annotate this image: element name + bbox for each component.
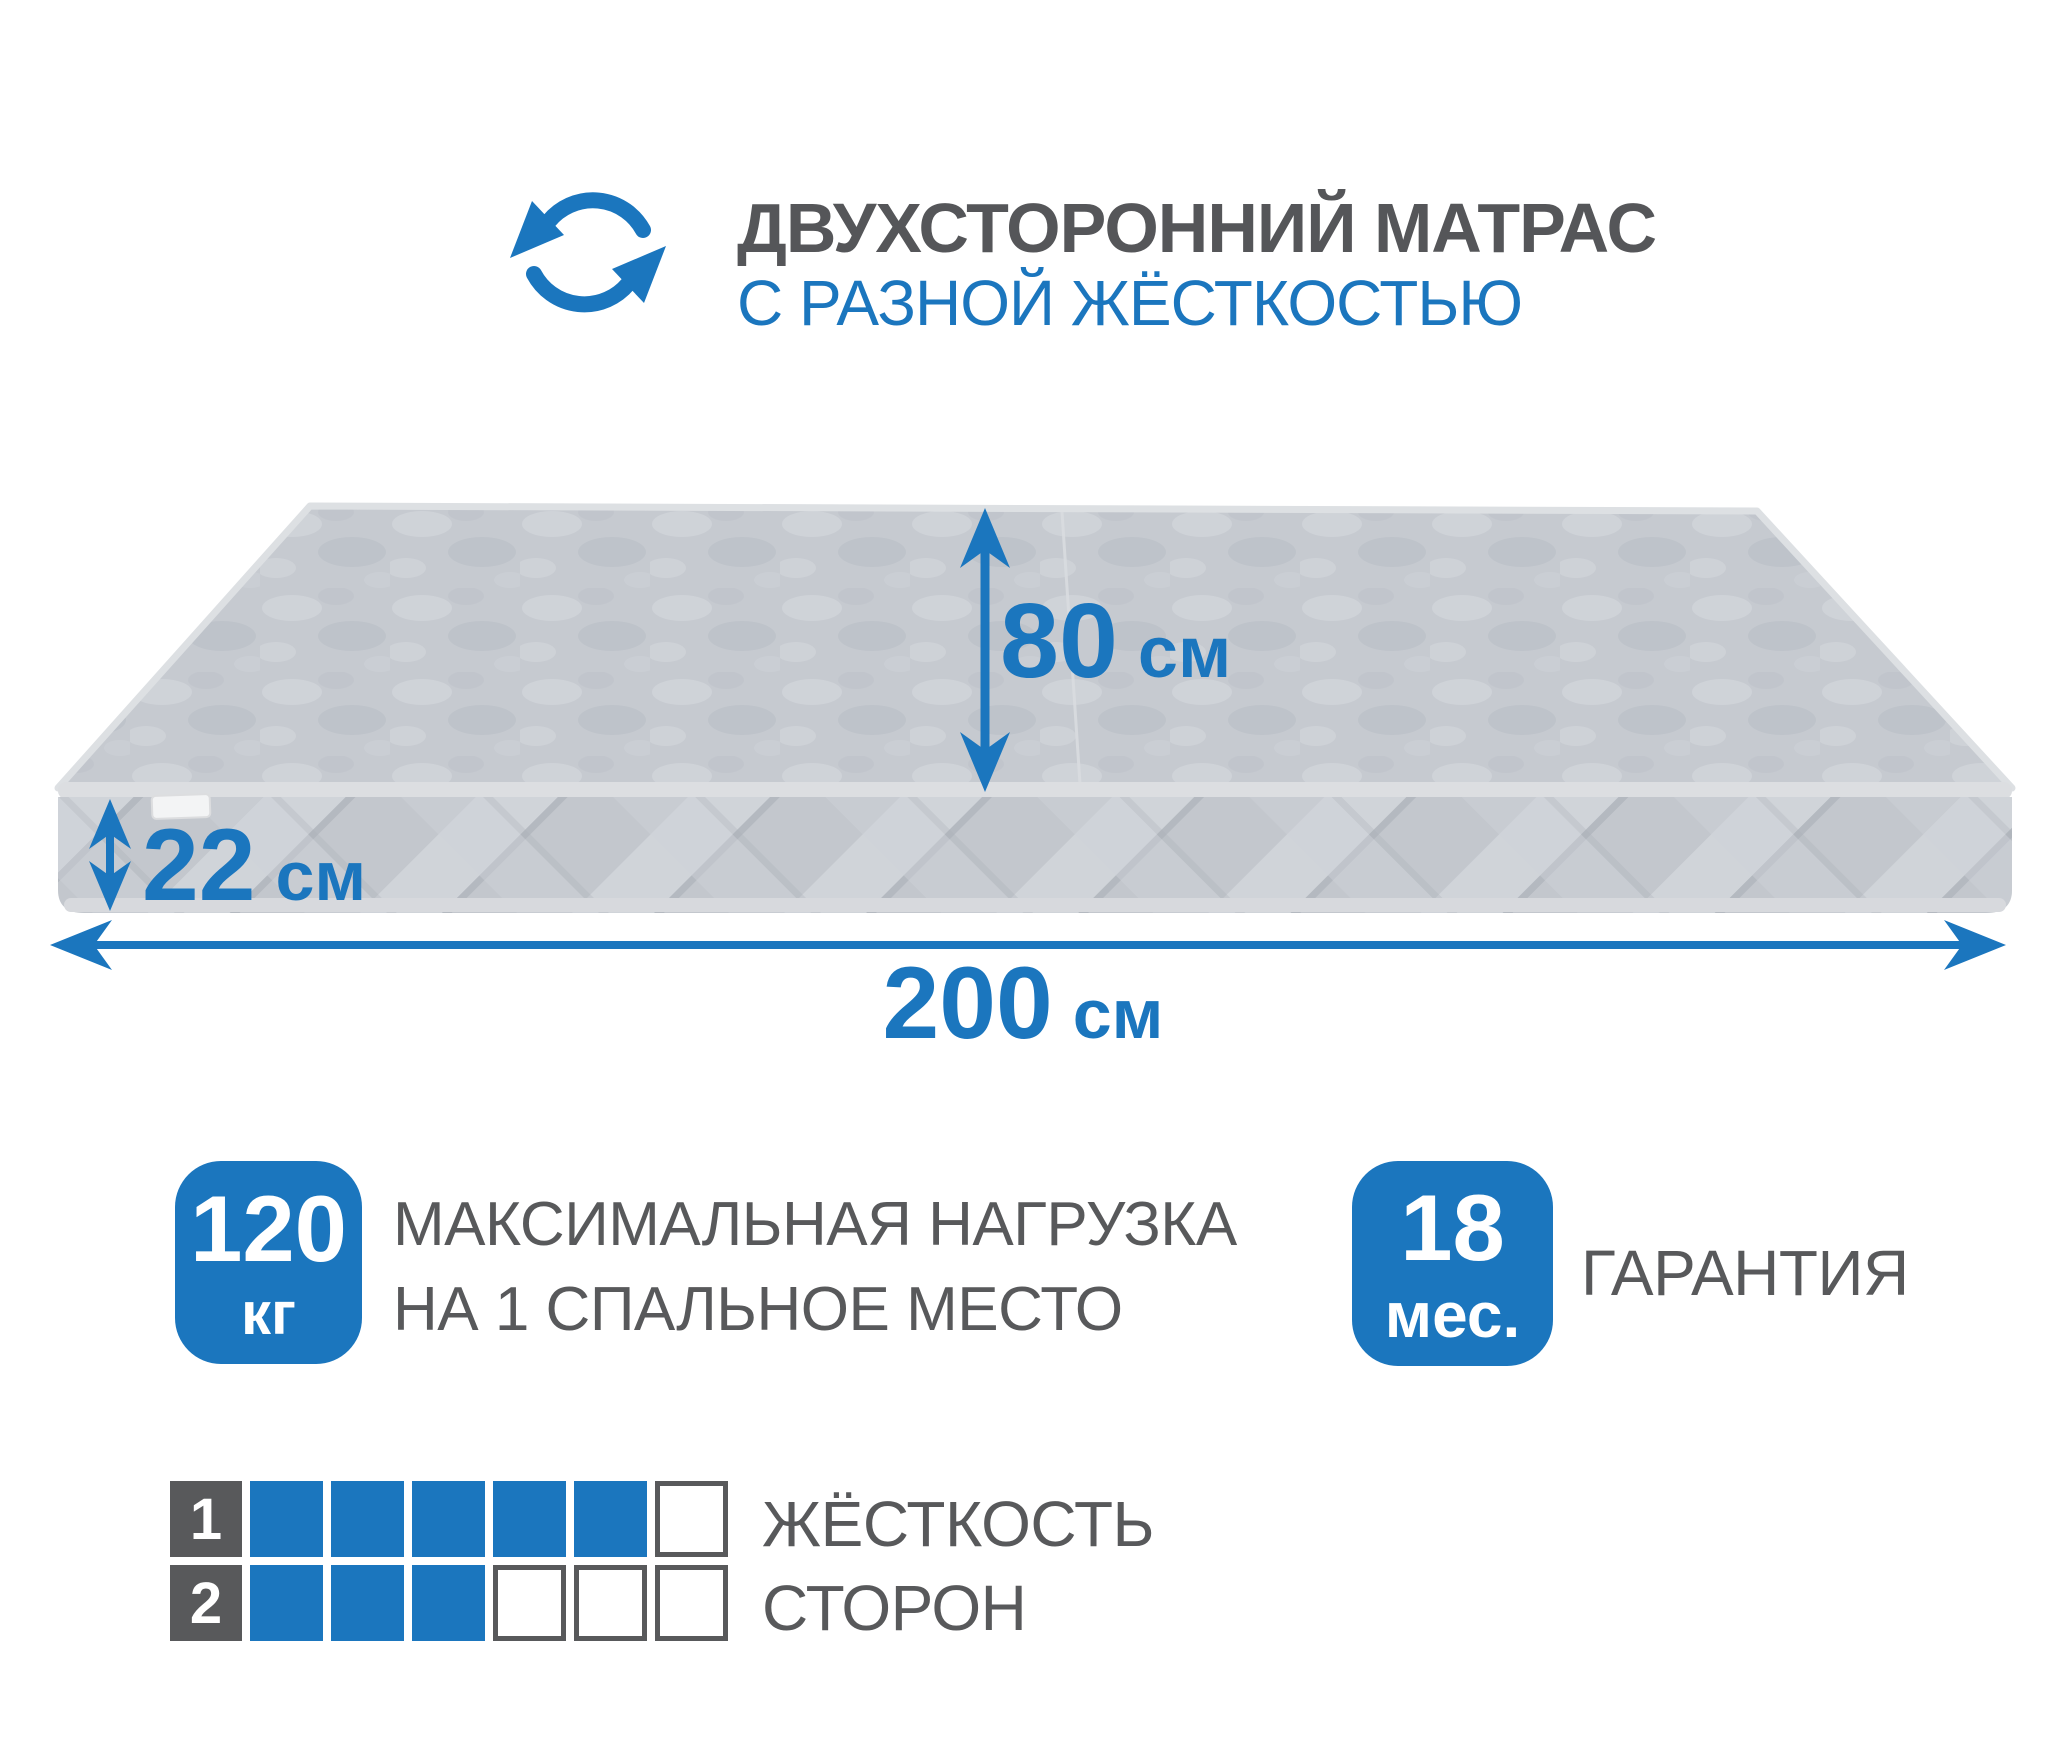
firmness-cell-filled xyxy=(412,1481,485,1557)
height-value: 22 xyxy=(142,808,255,922)
width-unit: см xyxy=(1138,613,1231,693)
length-dimension-label: 200см xyxy=(858,952,1188,1054)
max-load-caption-line1: МАКСИМАЛЬНАЯ НАГРУЗКА xyxy=(393,1182,1237,1267)
firmness-cell-filled xyxy=(250,1481,323,1557)
firmness-side2-label: 2 xyxy=(170,1565,242,1641)
firmness-cell-filled xyxy=(412,1565,485,1641)
firmness-cell-filled xyxy=(331,1565,404,1641)
warranty-unit: мес. xyxy=(1385,1283,1520,1347)
width-dimension-label: 80см xyxy=(1000,588,1231,694)
length-value: 200 xyxy=(883,946,1053,1060)
height-unit: см xyxy=(275,837,366,915)
warranty-caption: ГАРАНТИЯ xyxy=(1581,1236,1909,1310)
firmness-cell-empty xyxy=(655,1565,728,1641)
warranty-value: 18 xyxy=(1400,1181,1505,1275)
firmness-row-side2: 2 xyxy=(170,1565,728,1641)
firmness-cell-filled xyxy=(493,1481,566,1557)
firmness-cell-empty xyxy=(493,1565,566,1641)
firmness-cell-filled xyxy=(574,1481,647,1557)
length-unit: см xyxy=(1073,975,1164,1053)
mattress-front-piping xyxy=(58,782,2012,799)
max-load-caption-line2: НА 1 СПАЛЬНОЕ МЕСТО xyxy=(393,1267,1237,1352)
firmness-cell-empty xyxy=(655,1481,728,1557)
firmness-cell-empty xyxy=(574,1565,647,1641)
firmness-cell-filled xyxy=(250,1565,323,1641)
firmness-side1-label: 1 xyxy=(170,1481,242,1557)
height-dimension-label: 22см xyxy=(142,814,366,916)
warranty-badge: 18 мес. xyxy=(1352,1161,1553,1366)
firmness-row-side1: 1 xyxy=(170,1481,728,1557)
max-load-caption: МАКСИМАЛЬНАЯ НАГРУЗКА НА 1 СПАЛЬНОЕ МЕСТ… xyxy=(393,1182,1237,1352)
firmness-caption-line1: ЖЁСТКОСТЬ xyxy=(762,1487,1154,1561)
max-load-badge: 120 кг xyxy=(175,1161,362,1364)
width-value: 80 xyxy=(1000,582,1118,700)
max-load-value: 120 xyxy=(190,1182,347,1276)
infographic-canvas: ДВУХСТОРОННИЙ МАТРАС С РАЗНОЙ ЖЁСТКОСТЬЮ xyxy=(0,0,2048,1757)
firmness-caption-line2: СТОРОН xyxy=(762,1571,1026,1645)
max-load-unit: кг xyxy=(241,1284,296,1344)
firmness-cell-filled xyxy=(331,1481,404,1557)
